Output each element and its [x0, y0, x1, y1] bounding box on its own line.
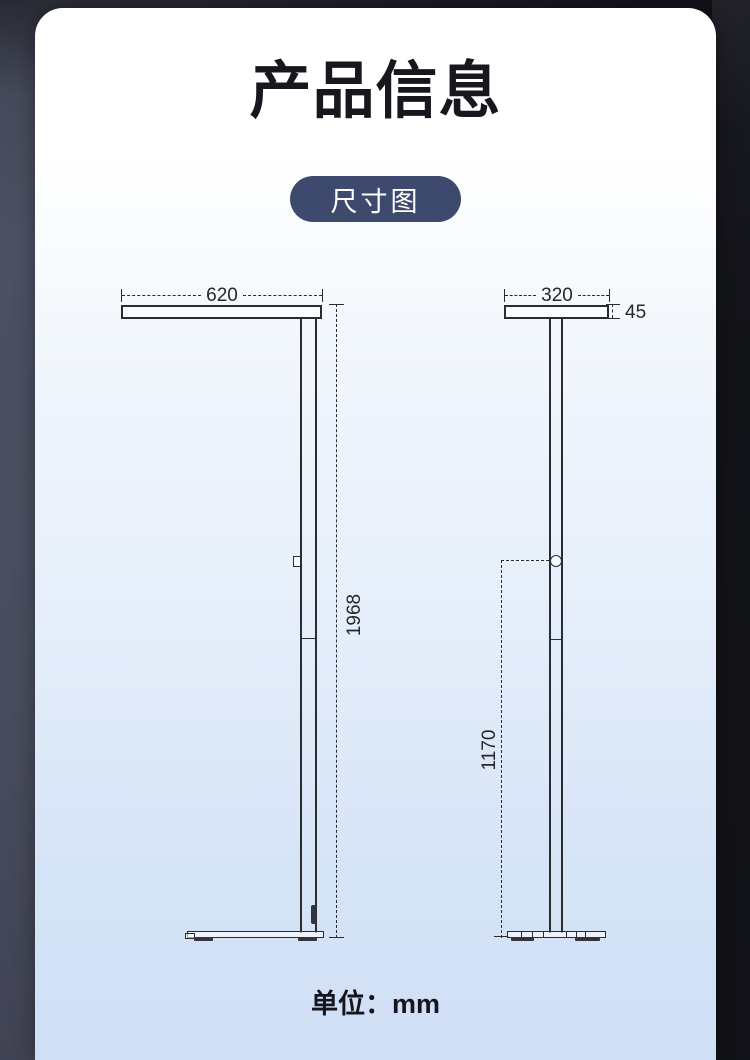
dim-dash	[578, 295, 609, 296]
dim-line-height-front	[336, 304, 337, 938]
dim-tick	[322, 289, 323, 302]
product-info-page: 产品信息 尺寸图 620	[0, 0, 750, 1060]
dim-width-front: 620	[121, 285, 323, 305]
base-seam	[543, 931, 544, 938]
dim-line-switch-horizontal	[501, 560, 549, 561]
dim-label-switch-height: 1170	[479, 726, 499, 774]
dim-line-thickness	[612, 304, 613, 318]
dim-depth-side: 320	[504, 285, 610, 305]
lamp-pole-front	[300, 319, 317, 933]
dim-tick	[609, 289, 610, 302]
unit-note: 单位：mm	[35, 982, 716, 1021]
dim-label-thickness: 45	[620, 303, 651, 322]
foot-pedal	[311, 905, 316, 924]
section-badge: 尺寸图	[290, 176, 461, 222]
pole-joint-front	[302, 638, 315, 639]
dim-tick	[606, 318, 620, 319]
section-badge-label: 尺寸图	[331, 180, 421, 219]
dim-dash	[243, 295, 322, 296]
lamp-head-front	[121, 305, 322, 319]
lamp-pole-side	[549, 319, 563, 933]
dim-dash	[122, 295, 201, 296]
pole-joint-side	[551, 639, 561, 640]
dim-label-width-front: 620	[201, 286, 243, 305]
card-content: 产品信息 尺寸图 620	[0, 0, 750, 1060]
dim-line-switch-vertical	[501, 560, 502, 938]
dim-tick	[606, 304, 620, 305]
base-seam	[566, 931, 567, 938]
base-foot	[511, 937, 534, 941]
touch-switch-notch	[293, 556, 301, 567]
dim-label-height-front: 1968	[344, 591, 364, 639]
base-foot	[575, 937, 600, 941]
base-foot	[298, 937, 317, 941]
switch-circle	[550, 555, 562, 567]
base-foot	[194, 937, 213, 941]
dim-dash	[505, 295, 536, 296]
lamp-head-side	[504, 305, 609, 319]
page-title: 产品信息	[35, 58, 716, 126]
dim-tick	[329, 937, 344, 938]
dim-label-depth-side: 320	[536, 286, 578, 305]
